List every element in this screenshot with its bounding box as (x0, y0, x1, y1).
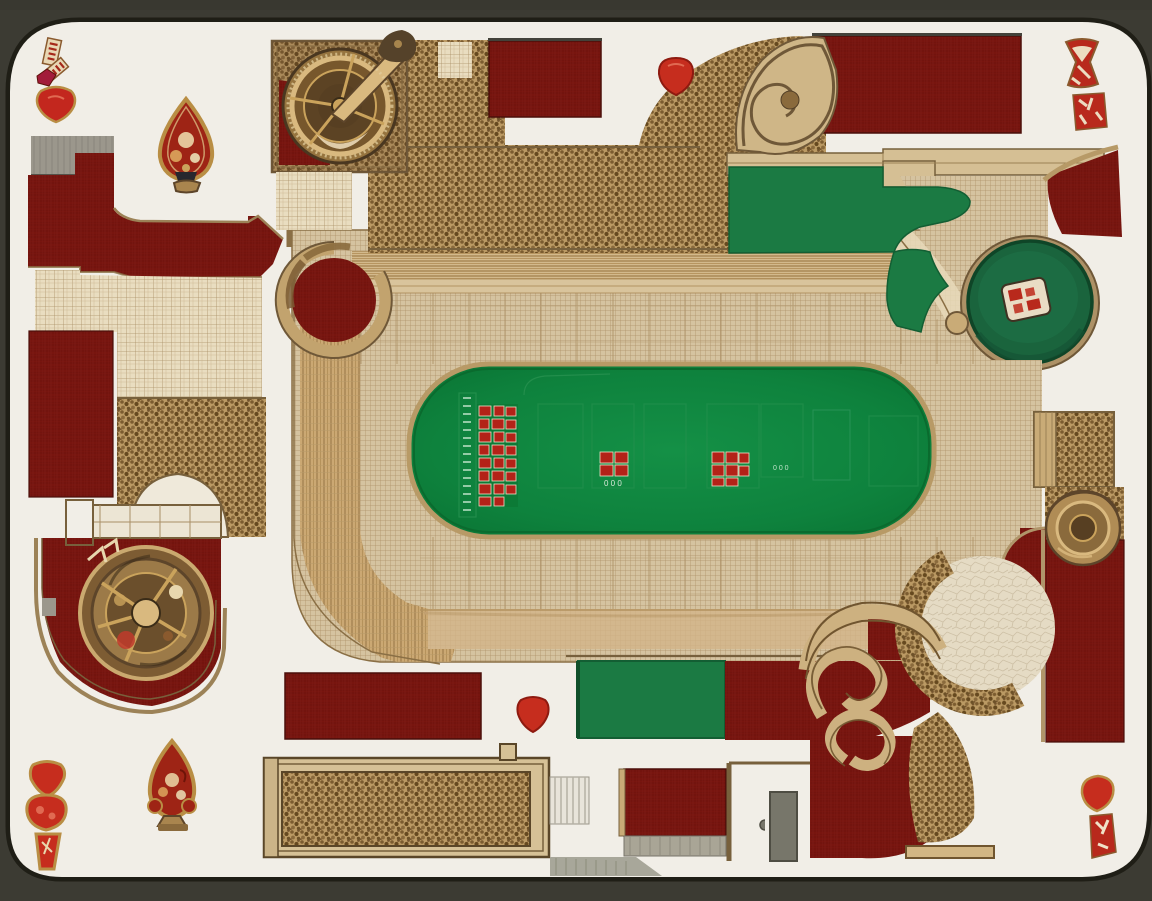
svg-text:0 0 0: 0 0 0 (773, 465, 789, 472)
svg-text:0 0 0: 0 0 0 (604, 479, 622, 488)
